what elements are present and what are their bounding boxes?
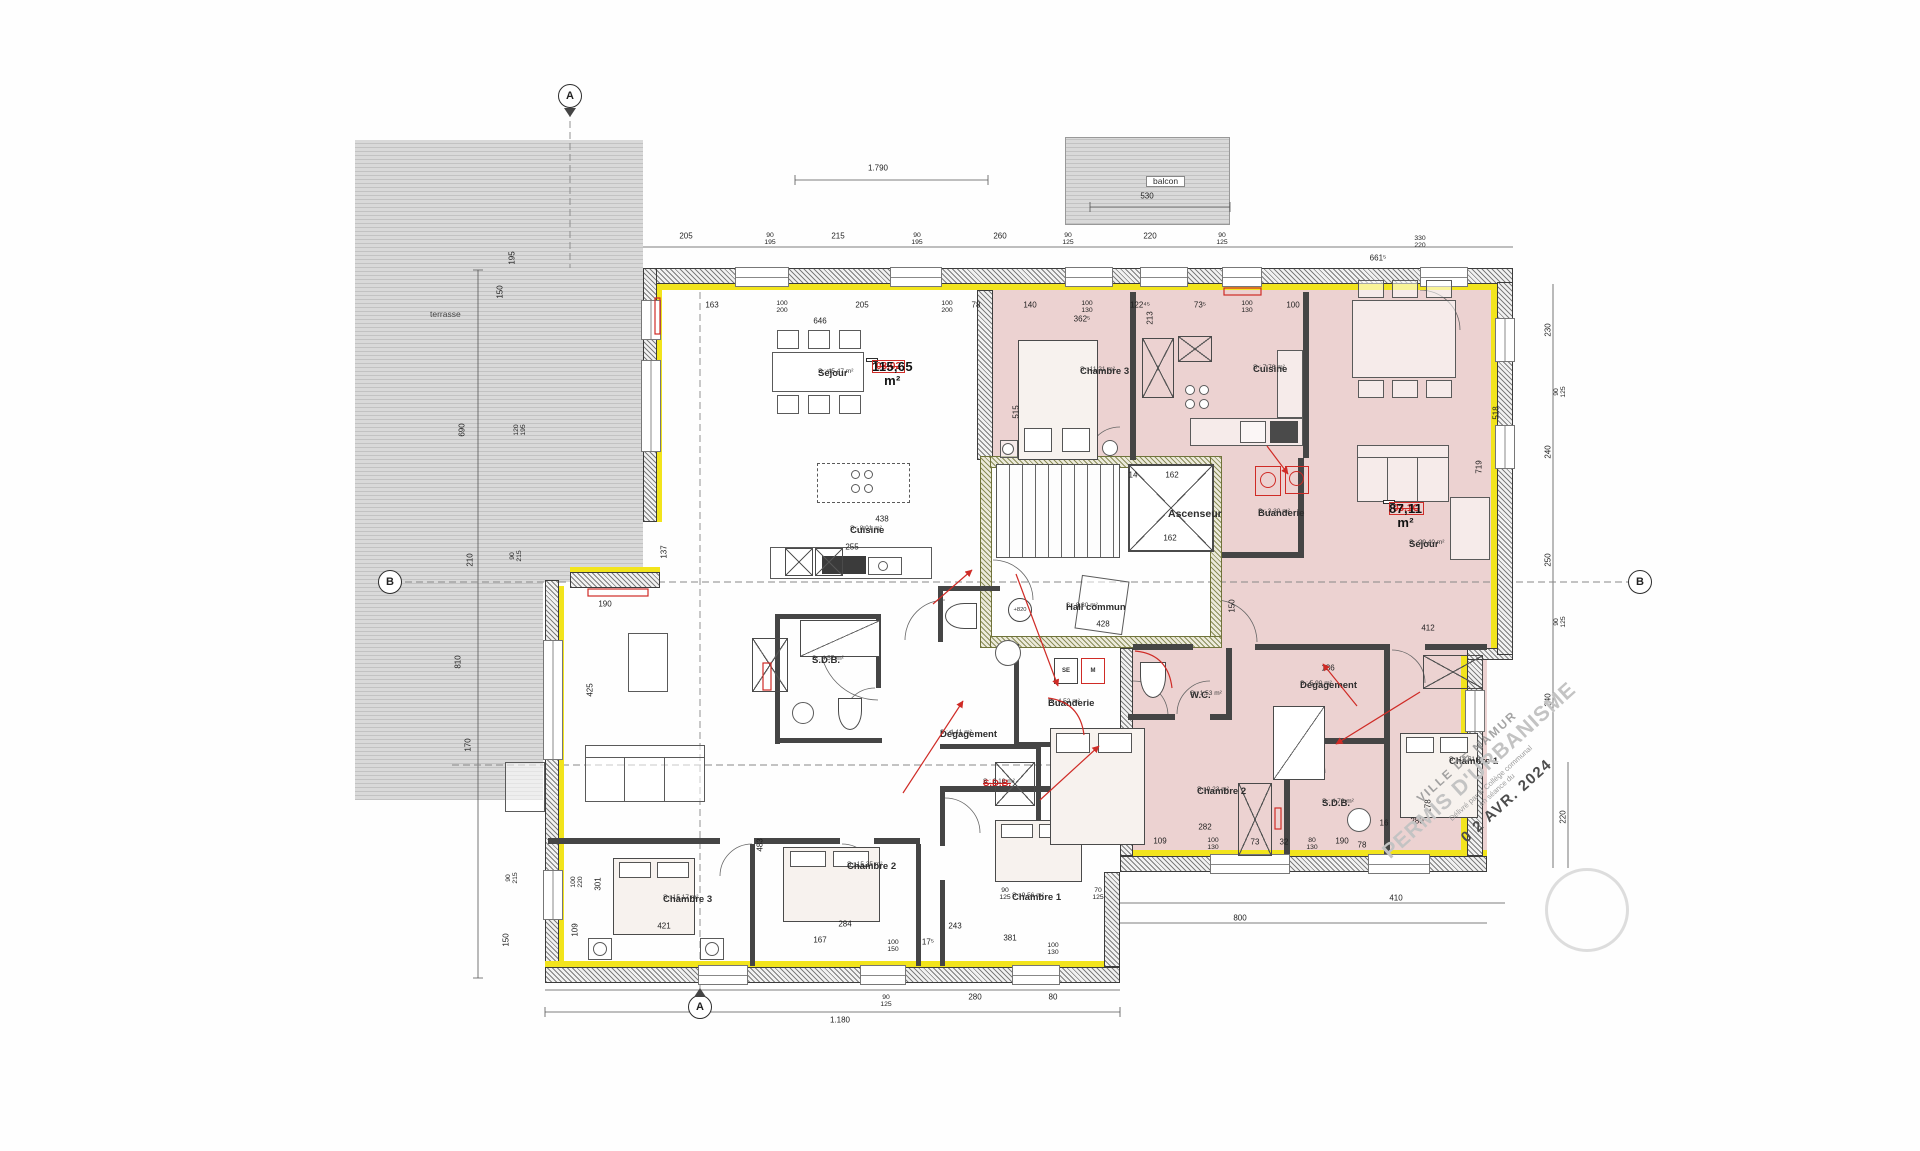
plan-linework	[1275, 808, 1281, 829]
stamp-seal-icon	[1545, 868, 1629, 952]
plan-linework	[1016, 574, 1058, 686]
plan-linework	[1040, 746, 1099, 800]
permit-stamp: VILLE DE NAMUR PERMIS D'URBANISME Délivr…	[1330, 730, 1650, 990]
plan-linework	[1048, 698, 1084, 735]
plan-linework	[763, 663, 771, 690]
plan-linework	[1323, 664, 1357, 706]
plan-linework	[1267, 446, 1288, 474]
plan-linework	[933, 570, 972, 604]
plan-linework	[1135, 651, 1172, 688]
floor-plan: SE M +820 SéjourS : 45,47 m²Cuisin	[0, 0, 1920, 1151]
plan-linework	[655, 298, 660, 334]
plan-linework	[588, 589, 648, 596]
plan-linework	[903, 701, 963, 793]
plan-linework	[1224, 288, 1261, 295]
plan-linework	[588, 288, 1420, 829]
